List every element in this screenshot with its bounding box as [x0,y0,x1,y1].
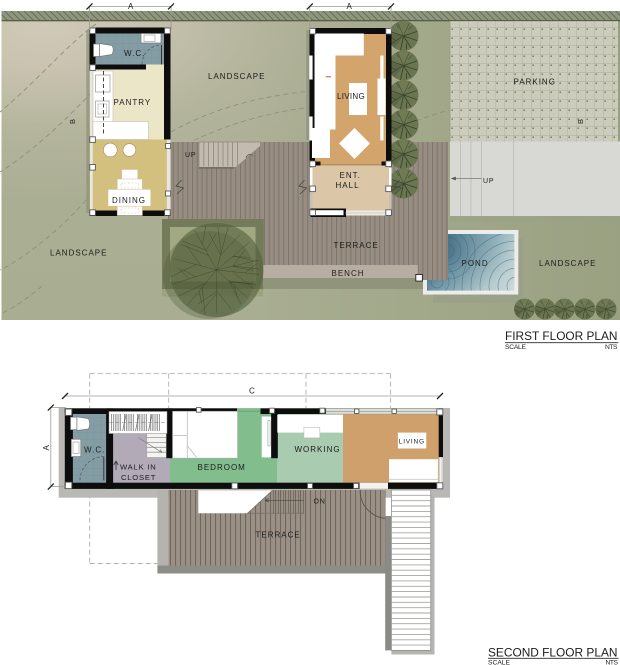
svg-text:ENT.: ENT. [340,171,361,180]
svg-text:NTS: NTS [606,659,619,665]
svg-text:LANDSCAPE: LANDSCAPE [208,72,265,81]
svg-text:TERRACE: TERRACE [334,241,379,250]
svg-text:WORKING: WORKING [295,445,341,454]
svg-text:A: A [347,2,353,11]
svg-text:SECOND FLOOR PLAN: SECOND FLOOR PLAN [488,646,618,660]
svg-text:CLOSET: CLOSET [121,473,156,482]
svg-text:SCALE: SCALE [488,659,511,665]
svg-text:W.C.: W.C. [84,446,105,455]
svg-text:W.C.: W.C. [124,49,145,58]
svg-text:SCALE: SCALE [505,344,527,351]
svg-text:PARKING: PARKING [514,78,556,87]
svg-text:LANDSCAPE: LANDSCAPE [539,259,596,268]
svg-text:DINING: DINING [112,196,146,205]
svg-text:LIVING: LIVING [399,438,425,445]
svg-text:LIVING: LIVING [337,92,365,101]
svg-text:BENCH: BENCH [332,269,365,278]
svg-text:UP: UP [483,178,494,185]
svg-text:UP: UP [185,152,196,159]
svg-text:POND: POND [462,259,489,268]
svg-text:B: B [576,118,585,124]
svg-text:A: A [42,445,51,451]
svg-text:WALK IN: WALK IN [120,463,157,472]
svg-text:B: B [68,118,77,124]
svg-text:HALL: HALL [336,181,360,190]
svg-text:BEDROOM: BEDROOM [198,463,246,472]
svg-text:NTS: NTS [605,344,618,351]
svg-text:FIRST FLOOR PLAN: FIRST FLOOR PLAN [505,330,618,343]
svg-text:C: C [249,387,255,396]
svg-text:TERRACE: TERRACE [256,531,301,540]
svg-text:LANDSCAPE: LANDSCAPE [50,249,107,258]
svg-text:A: A [128,2,134,11]
svg-text:ON: ON [314,499,326,506]
svg-text:PANTRY: PANTRY [114,98,152,107]
